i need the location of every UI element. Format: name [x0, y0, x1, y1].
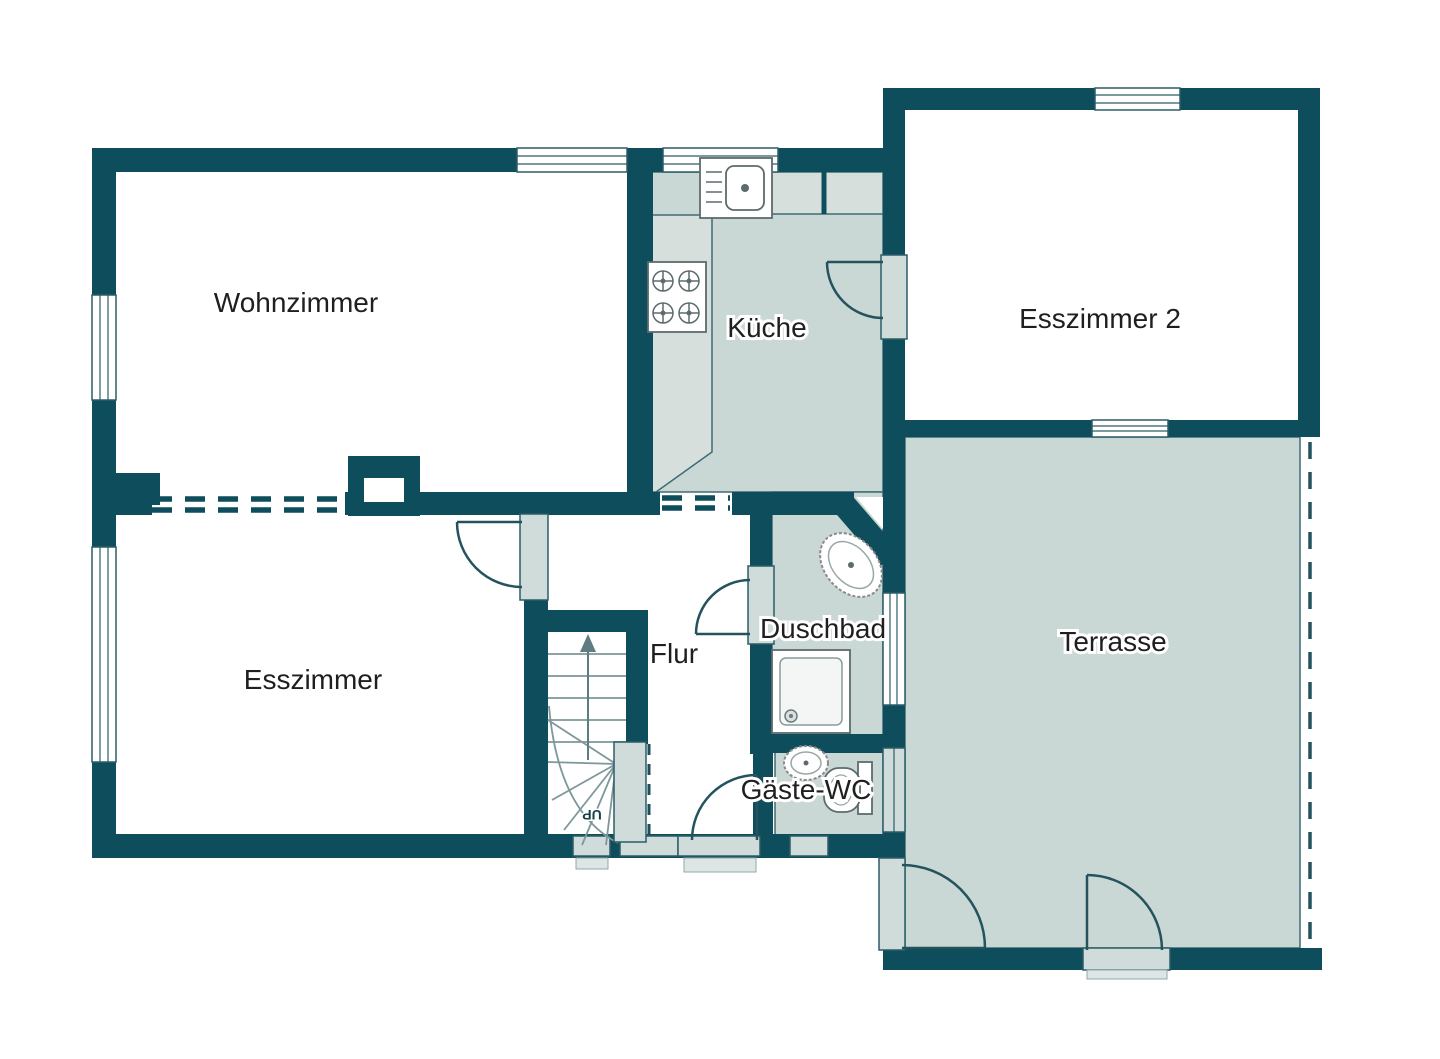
label-kueche: Küche — [727, 312, 806, 343]
threshold-entry — [678, 836, 760, 856]
window-gaeste-wc-bottom — [790, 836, 828, 856]
label-terrasse: Terrasse — [1059, 626, 1166, 657]
chimney — [348, 456, 420, 516]
wall-bottom — [92, 834, 905, 858]
wall-esszimmer-flur-lower — [524, 600, 548, 836]
entry-outside-step — [684, 858, 756, 872]
window-wohnzimmer-left — [92, 295, 116, 400]
threshold-stairs — [573, 836, 610, 856]
stair-landing-panel — [614, 742, 646, 842]
terrasse-floor — [905, 437, 1300, 948]
label-esszimmer: Esszimmer — [244, 664, 382, 695]
door-esszimmer — [457, 522, 522, 587]
wall-stairs-right — [626, 632, 648, 744]
shower-tray-icon — [772, 650, 850, 733]
window-wohnzimmer-top — [517, 148, 627, 172]
threshold-terrasse — [1083, 948, 1170, 970]
label-gaeste-wc: Gäste-WC — [741, 774, 872, 805]
doorframe-esszimmer — [520, 514, 548, 600]
window-duschbad-east — [883, 593, 905, 705]
stair-up-label: UP — [582, 807, 601, 823]
wall-esszimmer-flur-upper — [524, 492, 548, 516]
door-duschbad — [696, 580, 750, 634]
wall-esszimmer2-right — [1298, 88, 1320, 437]
doorframe-terrasse-west — [879, 858, 905, 950]
terrasse-outside-step — [1087, 970, 1167, 979]
stove-cooktop-icon — [648, 262, 706, 332]
window-esszimmer-left — [92, 547, 116, 762]
doorframe-kueche-esszimmer2 — [881, 255, 907, 339]
wall-stairs-top — [524, 610, 648, 632]
floorplan-svg: UP Wohnzimmer Küche Esszimmer 2 Terrasse… — [0, 0, 1440, 1059]
kitchen-sink-icon — [700, 158, 772, 218]
floor-fills — [652, 172, 1300, 948]
label-wohnzimmer: Wohnzimmer — [214, 287, 378, 318]
label-duschbad: Duschbad — [760, 613, 886, 644]
window-esszimmer2-top — [1095, 88, 1180, 110]
chimney-flue — [364, 478, 404, 502]
kitchen-counter-left — [652, 215, 712, 492]
wall-divider-pier — [100, 473, 160, 505]
label-esszimmer-2: Esszimmer 2 — [1019, 303, 1181, 334]
window-gaeste-wc-east — [883, 748, 905, 832]
floorplan-canvas: UP Wohnzimmer Küche Esszimmer 2 Terrasse… — [0, 0, 1440, 1059]
window-esszimmer2-terrasse — [1092, 420, 1168, 437]
label-flur: Flur — [650, 638, 698, 669]
wall-duschbad-left-upper — [750, 492, 772, 572]
stairs-outside-step — [576, 858, 608, 869]
